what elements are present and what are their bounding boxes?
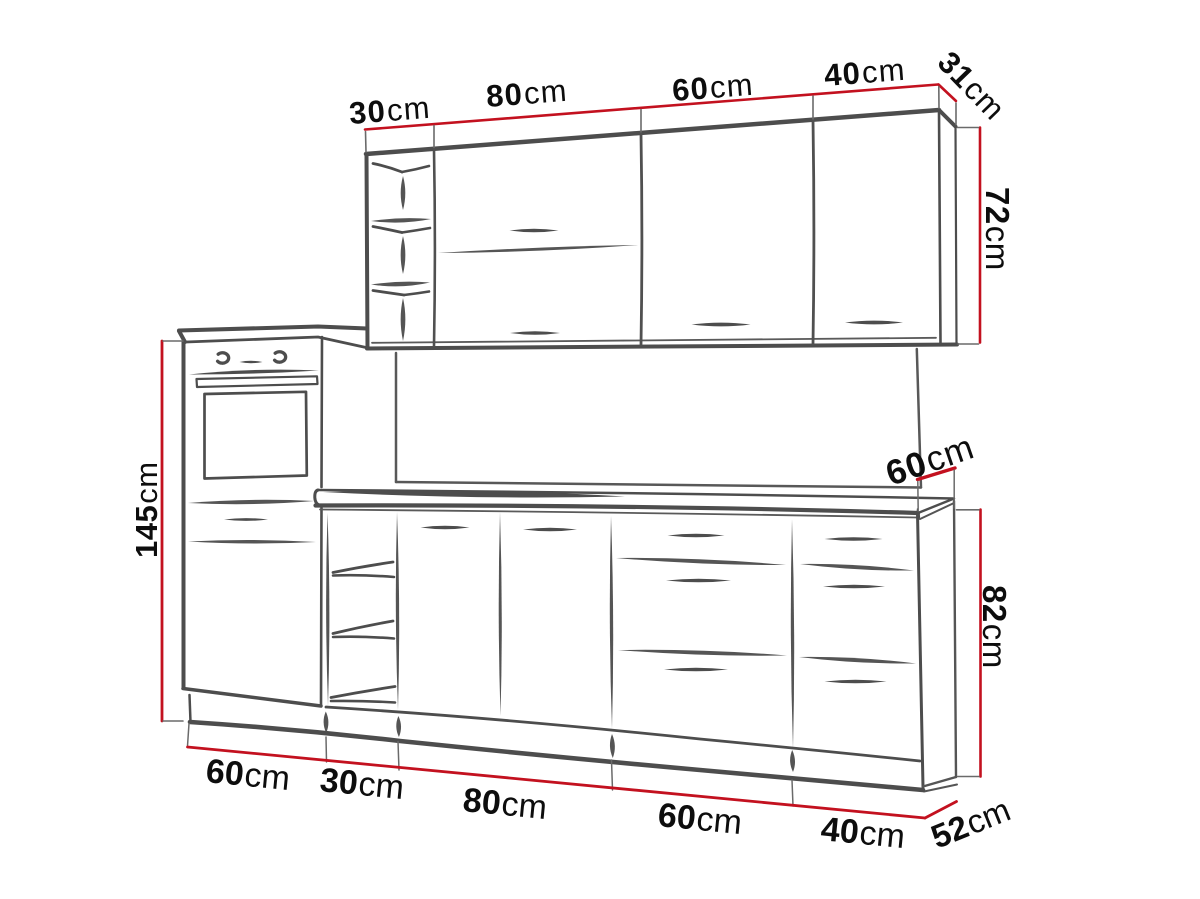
svg-text:145cm: 145cm: [129, 461, 164, 558]
svg-text:72cm: 72cm: [979, 187, 1016, 271]
svg-text:80cm: 80cm: [461, 781, 548, 827]
svg-text:80cm: 80cm: [485, 73, 569, 114]
svg-text:82cm: 82cm: [976, 585, 1013, 669]
svg-text:40cm: 40cm: [823, 52, 907, 93]
svg-text:60cm: 60cm: [204, 752, 291, 798]
svg-text:60cm: 60cm: [656, 796, 743, 842]
svg-text:30cm: 30cm: [348, 90, 432, 131]
svg-text:40cm: 40cm: [819, 810, 906, 856]
svg-text:30cm: 30cm: [318, 761, 405, 807]
svg-text:60cm: 60cm: [671, 67, 755, 108]
